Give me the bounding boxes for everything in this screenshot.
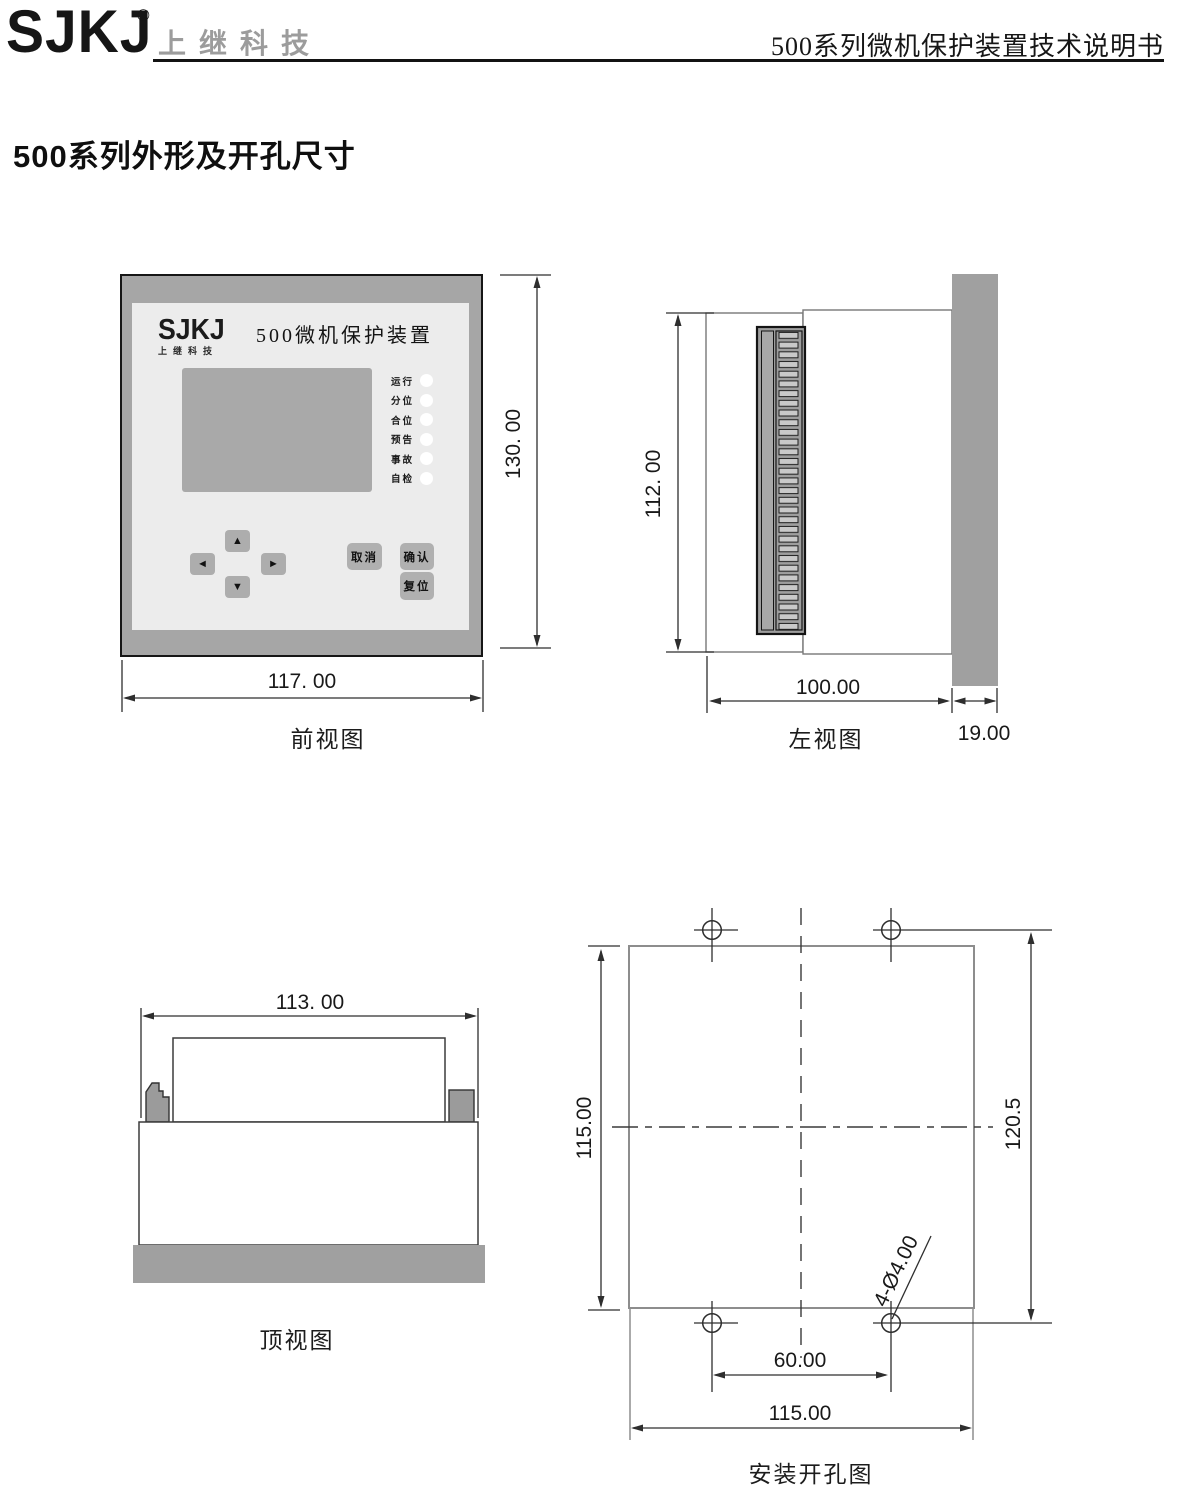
led-row: 自检 (378, 469, 433, 489)
top-width-dim: 113. 00 (276, 991, 345, 1014)
top-view-rear-body (173, 1038, 445, 1122)
lcd-screen (182, 368, 372, 492)
left-depth-dim: 100.00 (796, 676, 860, 699)
install-view-caption: 安装开孔图 (749, 1455, 874, 1489)
arrow-right-icon: ► (268, 558, 279, 570)
top-view-caption: 顶视图 (260, 1321, 335, 1355)
terminal-slots (776, 331, 802, 630)
led-indicator (420, 374, 433, 387)
left-view-caption: 左视图 (789, 720, 864, 754)
top-view-drawing (133, 1038, 485, 1283)
panel-thickness-dim: 19.00 (958, 722, 1011, 745)
manual-page: 130. 00 117. 00 112. 00 100.00 19.00 (0, 0, 1180, 1495)
cutout-width-dim: 115.00 (769, 1402, 832, 1425)
arrow-left-key: ◄ (190, 553, 215, 575)
drawings-layer: 130. 00 117. 00 112. 00 100.00 19.00 (0, 0, 1180, 1495)
arrow-down-key: ▼ (225, 576, 250, 598)
led-label: 预告 (378, 432, 414, 446)
front-view-caption: 前视图 (291, 720, 366, 754)
cutout-height-dim: 115.00 (573, 1097, 596, 1160)
front-width-dim: 117. 00 (268, 670, 337, 693)
reset-button: 复位 (400, 572, 434, 600)
top-view-left-latch (146, 1083, 169, 1122)
led-indicator (420, 433, 433, 446)
install-drawing: 4-Ø4.00 (612, 908, 1052, 1440)
led-row: 运行 (378, 371, 433, 391)
hole-spacing-h-dim: 60.00 (774, 1349, 827, 1372)
left-view-front-case (803, 310, 952, 654)
device-logo-subtext: 上继科技 (158, 344, 218, 357)
top-view-right-latch (449, 1090, 474, 1122)
led-indicator (420, 413, 433, 426)
arrow-up-key: ▲ (225, 530, 250, 552)
led-indicator (420, 452, 433, 465)
led-row: 合位 (378, 410, 433, 430)
mounting-panel-strip (952, 274, 998, 686)
device-title: 500微机保护装置 (256, 319, 433, 348)
document-title: 500系列微机保护装置技术说明书 (0, 26, 1164, 63)
arrow-down-icon: ▼ (232, 581, 243, 593)
top-view-front-bezel (133, 1245, 485, 1283)
led-label: 运行 (378, 374, 414, 388)
led-row: 预告 (378, 430, 433, 450)
led-row: 事故 (378, 449, 433, 469)
cancel-button: 取消 (347, 543, 382, 570)
front-height-dim: 130. 00 (502, 409, 525, 479)
led-indicator (420, 472, 433, 485)
page-title: 500系列外形及开孔尺寸 (13, 131, 356, 176)
top-view-case-body (139, 1122, 478, 1245)
registered-trademark-icon: ® (137, 6, 150, 26)
front-view-device: SJKJ 上继科技 500微机保护装置 运行 分位 合位 预告 (120, 274, 483, 657)
arrow-left-icon: ◄ (197, 558, 208, 570)
led-label: 合位 (378, 413, 414, 427)
header-divider (153, 59, 1164, 62)
left-height-dim: 112. 00 (642, 450, 665, 519)
led-label: 分位 (378, 393, 414, 407)
hole-spacing-v-dim: 120.5 (1002, 1098, 1025, 1151)
led-indicator (420, 394, 433, 407)
led-indicator-group: 运行 分位 合位 预告 事故 (378, 371, 433, 488)
led-row: 分位 (378, 391, 433, 411)
arrow-right-key: ► (261, 553, 286, 575)
device-logo: SJKJ (158, 316, 225, 345)
mounting-holes (694, 908, 1052, 1392)
led-label: 事故 (378, 452, 414, 466)
install-dimensions: 115.00 120.5 60.00 115.00 (573, 932, 1035, 1432)
left-view-drawing (706, 274, 998, 686)
device-front-panel: SJKJ 上继科技 500微机保护装置 运行 分位 合位 预告 (132, 303, 469, 630)
led-label: 自检 (378, 471, 414, 485)
confirm-button: 确认 (400, 543, 434, 570)
arrow-up-icon: ▲ (232, 535, 243, 547)
